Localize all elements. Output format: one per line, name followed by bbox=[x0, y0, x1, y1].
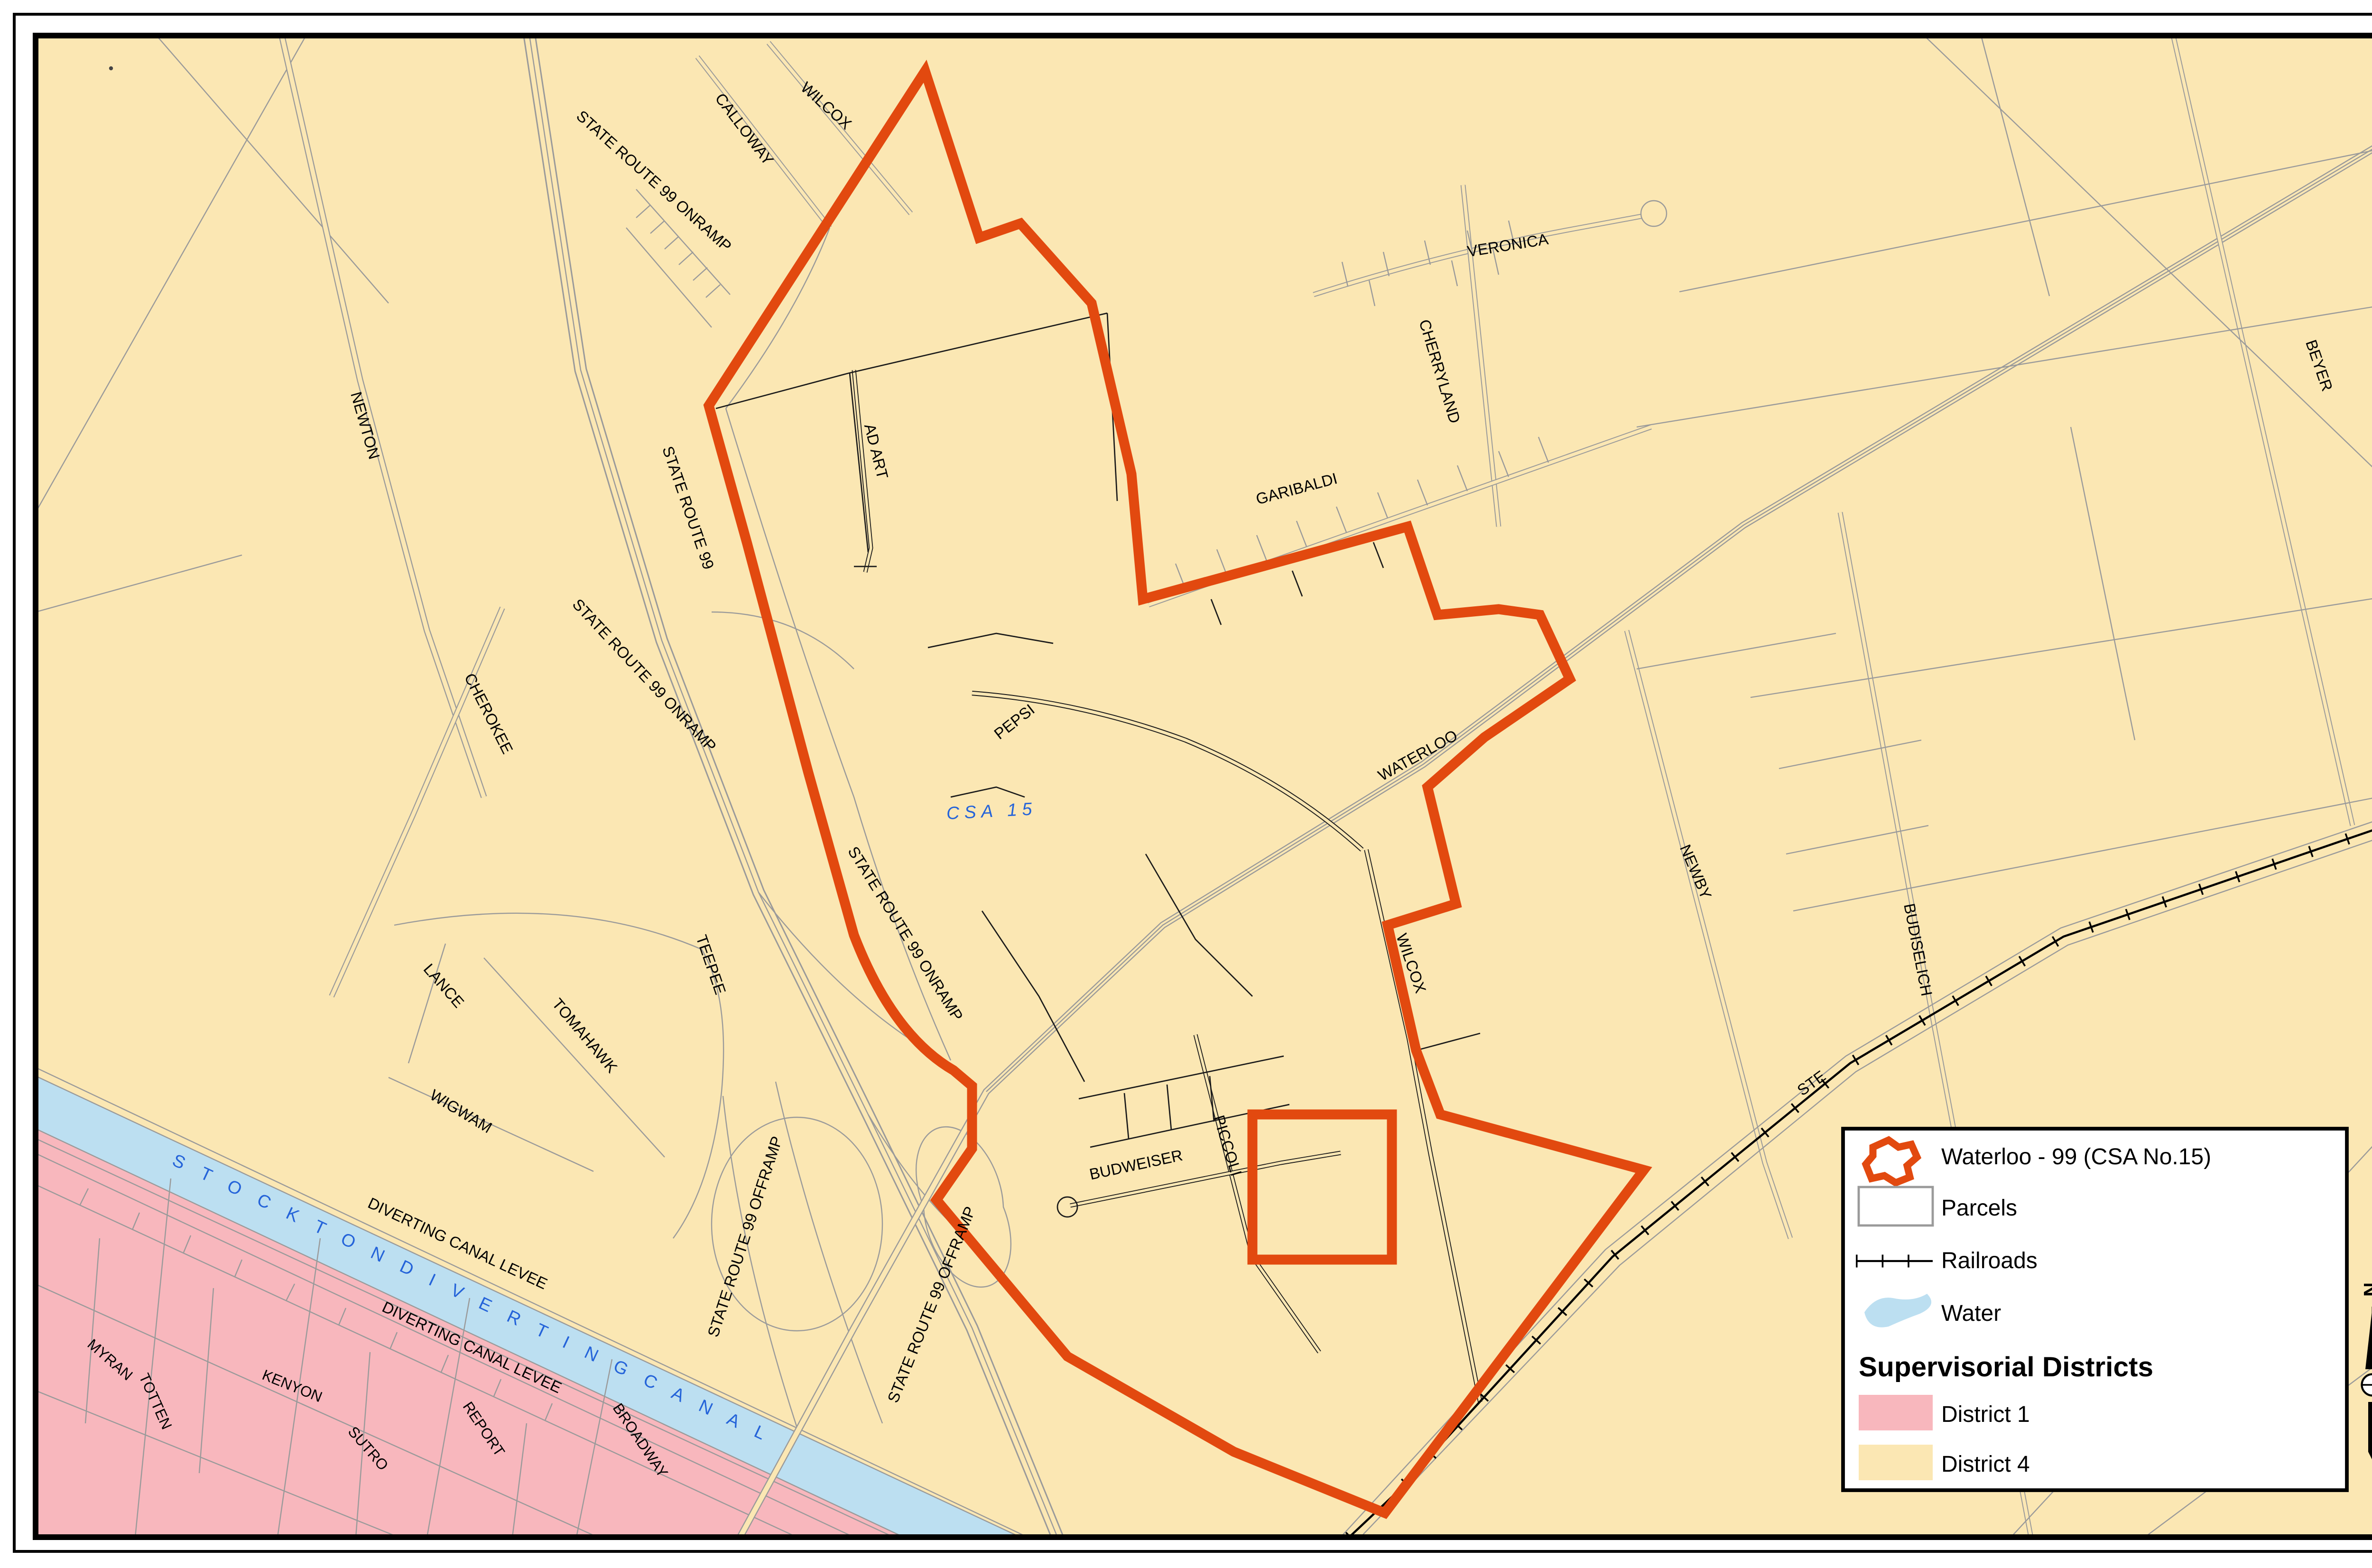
legend-district4-label: District 4 bbox=[1941, 1452, 2030, 1477]
map-canvas: CALLOWAY WILCOX STATE ROUTE 99 ONRAMP NE… bbox=[0, 0, 2372, 1566]
legend-parcels-label: Parcels bbox=[1941, 1196, 2017, 1221]
point-feature-dot bbox=[109, 66, 113, 70]
map-sheet: CALLOWAY WILCOX STATE ROUTE 99 ONRAMP NE… bbox=[0, 0, 2372, 1566]
legend-district1-swatch bbox=[1859, 1395, 1933, 1430]
legend-district1-label: District 1 bbox=[1941, 1402, 2030, 1427]
legend: Waterloo - 99 (CSA No.15) Parcels Railro… bbox=[1843, 1129, 2347, 1490]
legend-parcels-icon bbox=[1859, 1187, 1933, 1225]
legend-csa-boundary-icon bbox=[1866, 1140, 1917, 1183]
legend-water-label: Water bbox=[1941, 1301, 2001, 1326]
legend-csa-boundary-label: Waterloo - 99 (CSA No.15) bbox=[1941, 1144, 2211, 1169]
legend-railroads-label: Railroads bbox=[1941, 1248, 2038, 1273]
legend-district4-swatch bbox=[1859, 1445, 1933, 1480]
legend-districts-title: Supervisorial Districts bbox=[1859, 1352, 2153, 1382]
north-arrow-n-label: N bbox=[2360, 1282, 2372, 1297]
